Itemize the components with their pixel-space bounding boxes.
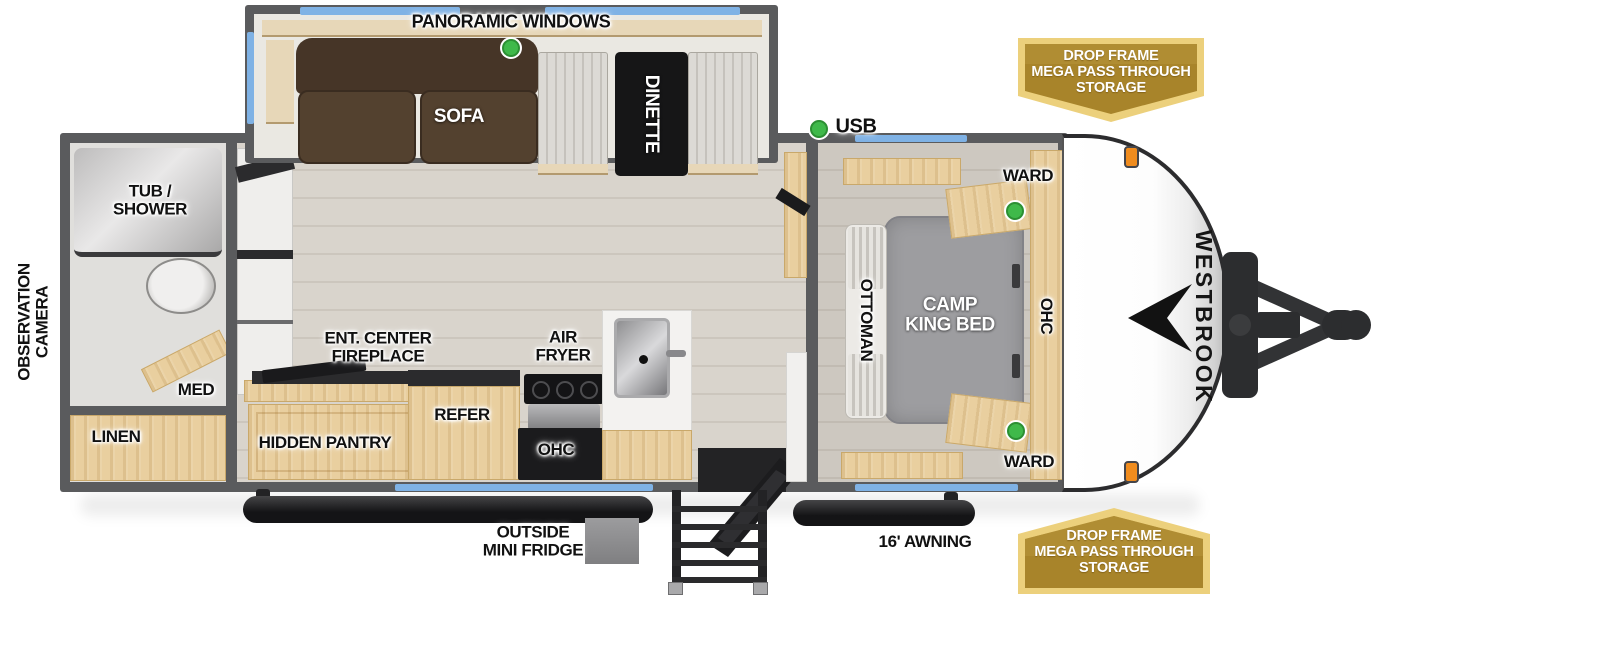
badge-line: STORAGE: [1016, 560, 1212, 576]
sink-drain: [639, 355, 648, 364]
floorplan-canvas: DROP FRAME MEGA PASS THROUGH STORAGE DRO…: [0, 0, 1600, 672]
label-ohc-bedroom: OHC: [1037, 298, 1055, 335]
step-rung: [672, 560, 767, 566]
bedroom-partition-wall: [806, 143, 818, 482]
led-indicator-dot: [502, 39, 520, 57]
label-ohc-kitchen: OHC: [538, 441, 575, 459]
label-panoramic-windows: PANORAMIC WINDOWS: [412, 13, 611, 32]
step-rung: [672, 542, 767, 548]
dinette-bench-left: [538, 52, 608, 168]
toilet: [146, 258, 216, 314]
led-indicator-dot: [810, 120, 828, 138]
brand-arrow-icon: [1128, 282, 1192, 354]
label-linen: LINEN: [91, 428, 140, 446]
badge-line: STORAGE: [1016, 80, 1206, 96]
label-hidden-pantry: HIDDEN PANTRY: [259, 434, 392, 452]
dinette-bench-base-left: [538, 164, 608, 175]
outside-mini-fridge-compartment: [585, 518, 639, 564]
bed-platform-top: [843, 158, 961, 185]
label-observation-camera: OBSERVATION CAMERA: [15, 263, 50, 380]
step-rung: [672, 524, 767, 530]
badge-line: DROP FRAME: [1016, 528, 1212, 544]
window-strip-slideout-side: [247, 32, 254, 124]
marker-light-top: [1124, 146, 1139, 168]
hitch-assembly: [1190, 240, 1375, 410]
refrigerator: [408, 386, 520, 480]
ottoman-cushion-bottom: [848, 354, 884, 416]
burner-icon: [532, 381, 550, 399]
faucet: [666, 350, 686, 357]
label-air-fryer: AIR FRYER: [536, 328, 591, 363]
burner-icon: [580, 381, 598, 399]
label-usb: USB: [835, 117, 876, 138]
label-dinette: DINETTE: [641, 75, 661, 153]
sofa-side-table: [266, 40, 294, 124]
bed-platform-bottom: [841, 452, 963, 479]
window-strip-bottom-kitchen: [395, 484, 653, 491]
brand-logo-text: WESTBROOK: [1191, 230, 1215, 405]
badge-line: DROP FRAME: [1016, 48, 1206, 64]
badge-line: MEGA PASS THROUGH: [1016, 544, 1212, 560]
entry-steps-rail-left: [672, 490, 681, 584]
step-rung: [672, 506, 767, 512]
label-ottoman: OTTOMAN: [857, 279, 875, 362]
oven-front: [528, 404, 600, 430]
linen-cabinet: [70, 415, 226, 481]
label-camp-king-bed: CAMP KING BED: [905, 295, 995, 335]
bathroom-wall: [226, 143, 237, 482]
shelf-line: [237, 320, 293, 324]
label-outside-mini-fridge: OUTSIDE MINI FRIDGE: [483, 523, 583, 558]
step-foot: [668, 582, 683, 595]
bed-pull-handle: [1012, 264, 1020, 288]
dinette-bench-right: [688, 52, 758, 168]
label-awning: 16' AWNING: [879, 533, 972, 551]
shelf-wedge-mid: [237, 250, 293, 259]
label-sofa: SOFA: [434, 107, 484, 127]
label-ent-center-fireplace: ENT. CENTER FIREPLACE: [324, 329, 431, 364]
window-strip-bottom-bedroom: [855, 484, 1018, 491]
burner-icon: [556, 381, 574, 399]
kitchen-sink: [614, 318, 670, 398]
entry-steps-rail-right: [758, 490, 767, 584]
label-tub-shower: TUB / SHOWER: [113, 182, 187, 217]
wardrobe-column: [237, 148, 293, 395]
storage-badge-top-text: DROP FRAME MEGA PASS THROUGH STORAGE: [1016, 48, 1206, 97]
label-ward-top: WARD: [1003, 167, 1053, 185]
storage-badge-bottom-text: DROP FRAME MEGA PASS THROUGH STORAGE: [1016, 528, 1212, 577]
label-refer: REFER: [434, 406, 490, 424]
bed-pull-handle: [1012, 354, 1020, 378]
bedroom-wall-face: [786, 352, 807, 482]
sink-base-cabinet: [602, 430, 692, 480]
awning-roll-right: [793, 500, 975, 526]
step-foot: [753, 582, 768, 595]
cooktop: [524, 374, 604, 404]
bathroom-partition-wall: [70, 406, 226, 415]
led-indicator-dot: [1006, 202, 1024, 220]
label-ward-bottom: WARD: [1004, 453, 1054, 471]
led-indicator-dot: [1007, 422, 1025, 440]
marker-light-bottom: [1124, 461, 1139, 483]
sofa-seat-left: [298, 90, 416, 164]
badge-line: MEGA PASS THROUGH: [1016, 64, 1206, 80]
label-med: MED: [178, 381, 215, 399]
dinette-bench-base-right: [688, 164, 758, 175]
